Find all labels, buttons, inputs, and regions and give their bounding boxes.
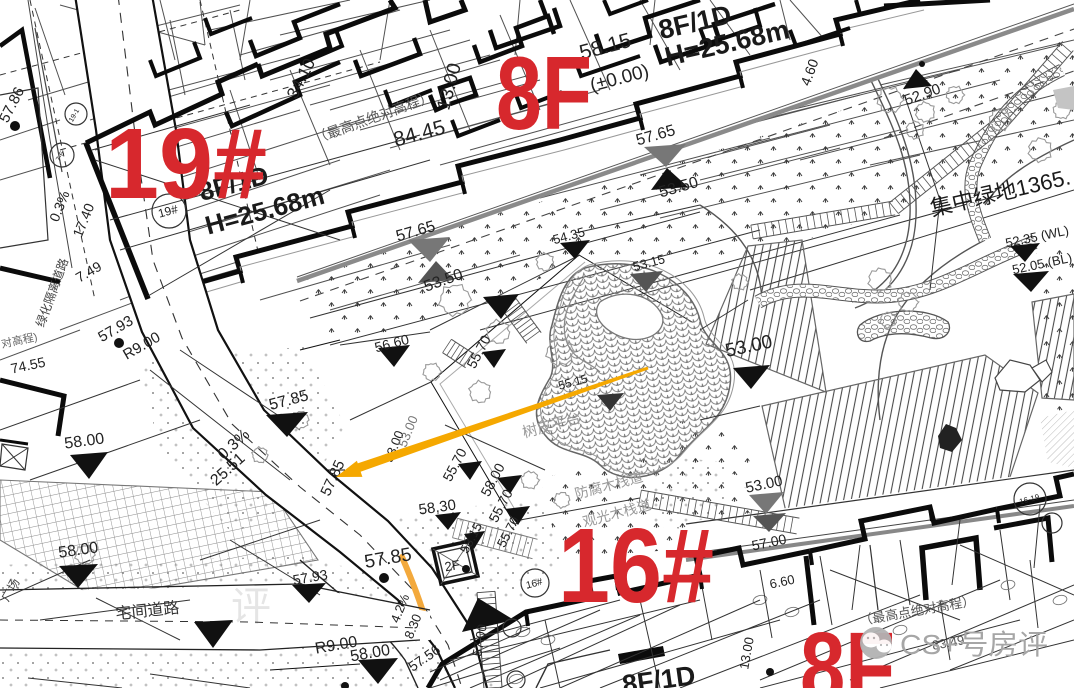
svg-text:评: 评 — [231, 585, 271, 629]
svg-text:19#: 19# — [105, 108, 267, 220]
svg-text:8F: 8F — [496, 36, 592, 152]
svg-text:CS+号房评: CS+号房评 — [900, 629, 1048, 660]
svg-text:2F: 2F — [443, 557, 461, 574]
svg-text:16#: 16# — [558, 507, 714, 625]
